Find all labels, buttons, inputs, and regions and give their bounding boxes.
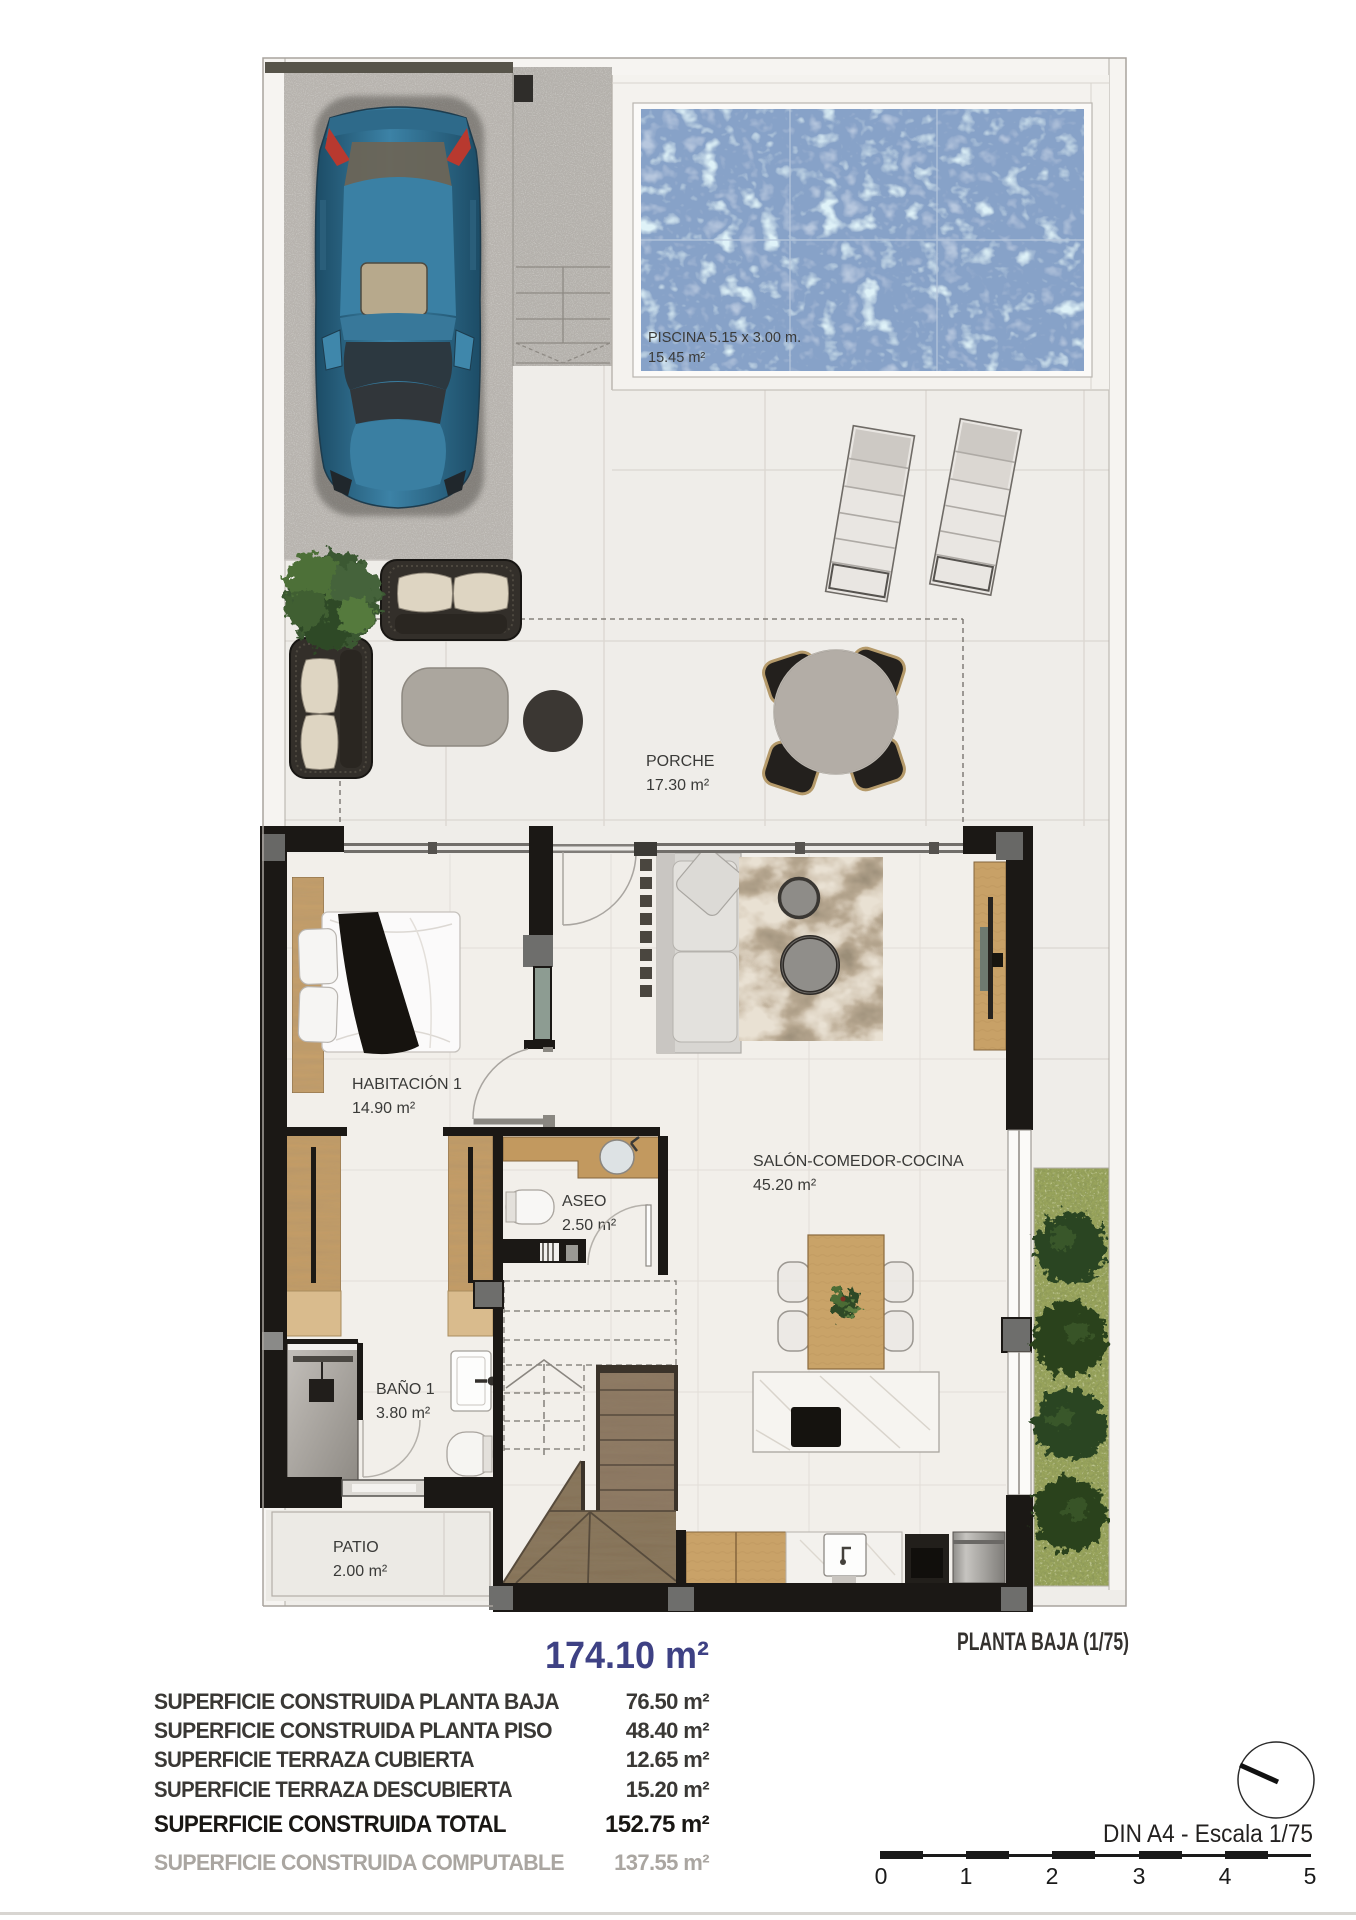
svg-text:48.40 m²: 48.40 m²	[626, 1718, 710, 1743]
svg-text:SUPERFICIE CONSTRUIDA TOTAL: SUPERFICIE CONSTRUIDA TOTAL	[154, 1811, 506, 1838]
svg-text:174.10 m²: 174.10 m²	[545, 1635, 709, 1677]
svg-text:SUPERFICIE CONSTRUIDA PLANTA P: SUPERFICIE CONSTRUIDA PLANTA PISO	[154, 1718, 552, 1743]
svg-text:0: 0	[875, 1863, 888, 1889]
svg-text:14.90 m²: 14.90 m²	[352, 1100, 416, 1117]
svg-text:ASEO: ASEO	[562, 1193, 606, 1210]
svg-text:2: 2	[1046, 1863, 1059, 1889]
svg-text:1: 1	[960, 1863, 973, 1889]
svg-text:SUPERFICIE TERRAZA DESCUBIERTA: SUPERFICIE TERRAZA DESCUBIERTA	[154, 1777, 513, 1802]
svg-text:2.00 m²: 2.00 m²	[333, 1563, 388, 1580]
svg-text:5: 5	[1304, 1863, 1317, 1889]
svg-text:3: 3	[1133, 1863, 1146, 1889]
svg-text:17.30 m²: 17.30 m²	[646, 777, 710, 794]
svg-text:BAÑO 1: BAÑO 1	[376, 1378, 435, 1398]
svg-text:12.65 m²: 12.65 m²	[626, 1747, 710, 1772]
svg-text:15.20 m²: 15.20 m²	[626, 1777, 710, 1802]
svg-text:SUPERFICIE CONSTRUIDA PLANTA B: SUPERFICIE CONSTRUIDA PLANTA BAJA	[154, 1689, 560, 1714]
svg-text:PATIO: PATIO	[333, 1539, 379, 1556]
svg-text:3.80 m²: 3.80 m²	[376, 1405, 431, 1422]
svg-text:HABITACIÓN 1: HABITACIÓN 1	[352, 1074, 462, 1093]
svg-text:137.55 m²: 137.55 m²	[614, 1850, 709, 1875]
svg-text:45.20 m²: 45.20 m²	[753, 1177, 817, 1194]
svg-text:15.45 m²: 15.45 m²	[648, 350, 705, 366]
svg-text:PORCHE: PORCHE	[646, 753, 714, 770]
svg-text:152.75 m²: 152.75 m²	[605, 1811, 710, 1838]
svg-text:4: 4	[1219, 1863, 1232, 1889]
svg-text:DIN A4 - Escala 1/75: DIN A4 - Escala 1/75	[1103, 1820, 1313, 1848]
svg-text:SALÓN-COMEDOR-COCINA: SALÓN-COMEDOR-COCINA	[753, 1151, 964, 1170]
svg-text:SUPERFICIE CONSTRUIDA COMPUTAB: SUPERFICIE CONSTRUIDA COMPUTABLE	[154, 1850, 564, 1875]
svg-text:PISCINA 5.15 x 3.00 m.: PISCINA 5.15 x 3.00 m.	[648, 330, 801, 346]
svg-text:PLANTA BAJA (1/75): PLANTA BAJA (1/75)	[957, 1628, 1129, 1656]
svg-text:SUPERFICIE TERRAZA CUBIERTA: SUPERFICIE TERRAZA CUBIERTA	[154, 1747, 475, 1772]
svg-text:76.50 m²: 76.50 m²	[626, 1689, 710, 1714]
